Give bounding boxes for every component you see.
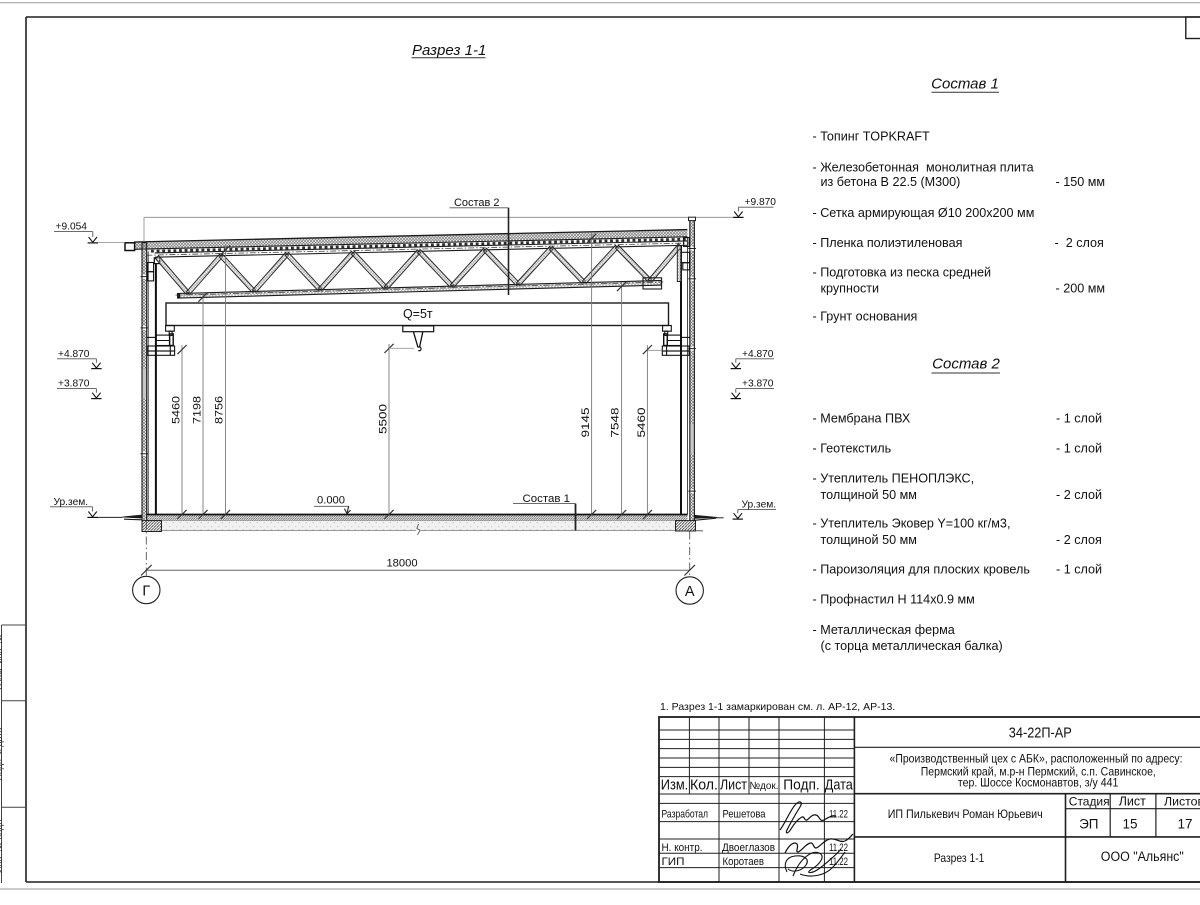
svg-text:- Утеплитель ПЕНОПЛЭКС,: - Утеплитель ПЕНОПЛЭКС, [813,472,975,486]
svg-text:Разрез 1-1: Разрез 1-1 [934,851,985,865]
svg-text:Ур.зем.: Ур.зем. [742,500,777,511]
svg-text:Листов: Листов [1164,794,1200,808]
svg-text:толщиной 50 мм: толщиной 50 мм [821,488,917,502]
svg-text:5460: 5460 [636,408,648,438]
svg-text:- Пароизоляция для плоских кро: - Пароизоляция для плоских кровель [813,562,1031,576]
svg-text:+3.870: +3.870 [58,379,90,390]
svg-text:Состав 1: Состав 1 [523,493,571,505]
svg-text:- 1 слой: - 1 слой [1056,411,1102,425]
svg-text:11.22: 11.22 [829,809,848,821]
svg-text:- Геотекстиль: - Геотекстиль [813,442,892,456]
svg-text:№док.: №док. [750,780,779,792]
svg-text:- 200 мм: - 200 мм [1056,281,1106,295]
svg-text:Дата: Дата [825,778,854,794]
svg-text:Разрез 1-1: Разрез 1-1 [412,42,486,59]
svg-text:Ур.зем.: Ур.зем. [54,497,89,508]
svg-text:Состав 1: Состав 1 [931,75,999,92]
svg-text:Н. контр.: Н. контр. [662,842,703,854]
svg-text:18000: 18000 [386,558,417,570]
svg-text:- 1 слой: - 1 слой [1056,562,1102,576]
svg-text:ГИП: ГИП [662,856,685,868]
svg-text:ЭП: ЭП [1079,817,1098,832]
svg-text:Инв. № подл.: Инв. № подл. [0,817,4,873]
svg-text:Решетова: Решетова [723,809,767,821]
svg-text:Стадия: Стадия [1069,794,1110,808]
svg-text:- Подготовка из песка средней: - Подготовка из песка средней [813,266,992,280]
svg-text:34-22П-АР: 34-22П-АР [1009,725,1072,742]
svg-text:Г: Г [142,583,150,599]
svg-text:5500: 5500 [378,404,390,434]
svg-text:ИП Пилькевич Роман Юрьевич: ИП Пилькевич Роман Юрьевич [888,807,1043,821]
svg-text:(с торца металлическая балка): (с торца металлическая балка) [821,639,1003,653]
svg-text:- 2 слой: - 2 слой [1056,488,1102,502]
svg-text:9145: 9145 [580,408,592,438]
svg-text:- Пленка полиэтиленовая: - Пленка полиэтиленовая [813,236,963,250]
svg-text:1. Разрез 1-1 замаркирован см.: 1. Разрез 1-1 замаркирован см. л. АР-12,… [660,701,895,713]
svg-text:+9.870: +9.870 [745,197,777,208]
svg-text:- 150 мм: - 150 мм [1056,175,1106,189]
svg-text:тер. Шоссе Космонавтов, з/у 44: тер. Шоссе Космонавтов, з/у 441 [958,776,1119,790]
svg-text:- Утеплитель Эковер Y=100 кг/м: - Утеплитель Эковер Y=100 кг/м3, [813,517,1011,531]
svg-text:0.000: 0.000 [317,495,345,507]
svg-text:Двоеглазов: Двоеглазов [722,842,775,854]
svg-text:Лист: Лист [720,778,747,794]
svg-text:толщиной 50 мм: толщиной 50 мм [821,533,917,547]
svg-text:15: 15 [1122,817,1137,832]
svg-text:5460: 5460 [171,396,183,424]
svg-text:- 2 слоя: - 2 слоя [1055,236,1104,250]
svg-text:Подп.: Подп. [783,778,820,794]
svg-text:17: 17 [1177,817,1192,832]
svg-text:- 1 слой: - 1 слой [1056,442,1102,456]
svg-text:7198: 7198 [192,396,204,424]
svg-text:Коротаев: Коротаев [723,856,765,868]
svg-text:- Мембрана ПВХ: - Мембрана ПВХ [813,411,911,425]
svg-text:+9.054: +9.054 [56,222,88,233]
svg-text:- 2 слоя: - 2 слоя [1056,533,1102,547]
svg-text:8756: 8756 [214,396,226,424]
svg-text:Разработал: Разработал [662,809,709,821]
svg-text:Кол.: Кол. [690,778,718,794]
svg-text:крупности: крупности [821,281,880,295]
svg-text:из бетона В 22.5 (М300): из бетона В 22.5 (М300) [821,175,961,189]
svg-text:Изм.: Изм. [661,778,689,794]
svg-text:Лист: Лист [1119,794,1146,808]
svg-text:Состав 2: Состав 2 [454,197,500,209]
svg-text:ООО "Альянс": ООО "Альянс" [1101,849,1184,864]
svg-text:+3.870: +3.870 [742,379,774,390]
svg-text:- Металлическая ферма: - Металлическая ферма [813,623,955,637]
svg-text:- Грунт основания: - Грунт основания [813,310,918,324]
svg-text:Q=5т: Q=5т [403,307,433,321]
svg-text:- Профнастил Н 114x0.9 мм: - Профнастил Н 114x0.9 мм [813,592,975,606]
svg-text:+4.870: +4.870 [742,349,774,360]
svg-text:+4.870: +4.870 [58,349,90,360]
svg-text:- Сетка армирующая Ø10 200x200: - Сетка армирующая Ø10 200x200 мм [813,206,1035,220]
svg-text:Подп. и дата: Подп. и дата [0,727,4,780]
svg-text:7548: 7548 [610,408,622,438]
svg-text:- Железобетонная монолитная п: - Железобетонная монолитная плита [813,161,1034,175]
svg-text:- Топинг TOPKRAFT: - Топинг TOPKRAFT [813,129,931,143]
svg-text:Состав 2: Состав 2 [932,355,1000,372]
svg-text:Взам. инв. №: Взам. инв. № [0,634,4,690]
svg-text:А: А [685,584,695,600]
